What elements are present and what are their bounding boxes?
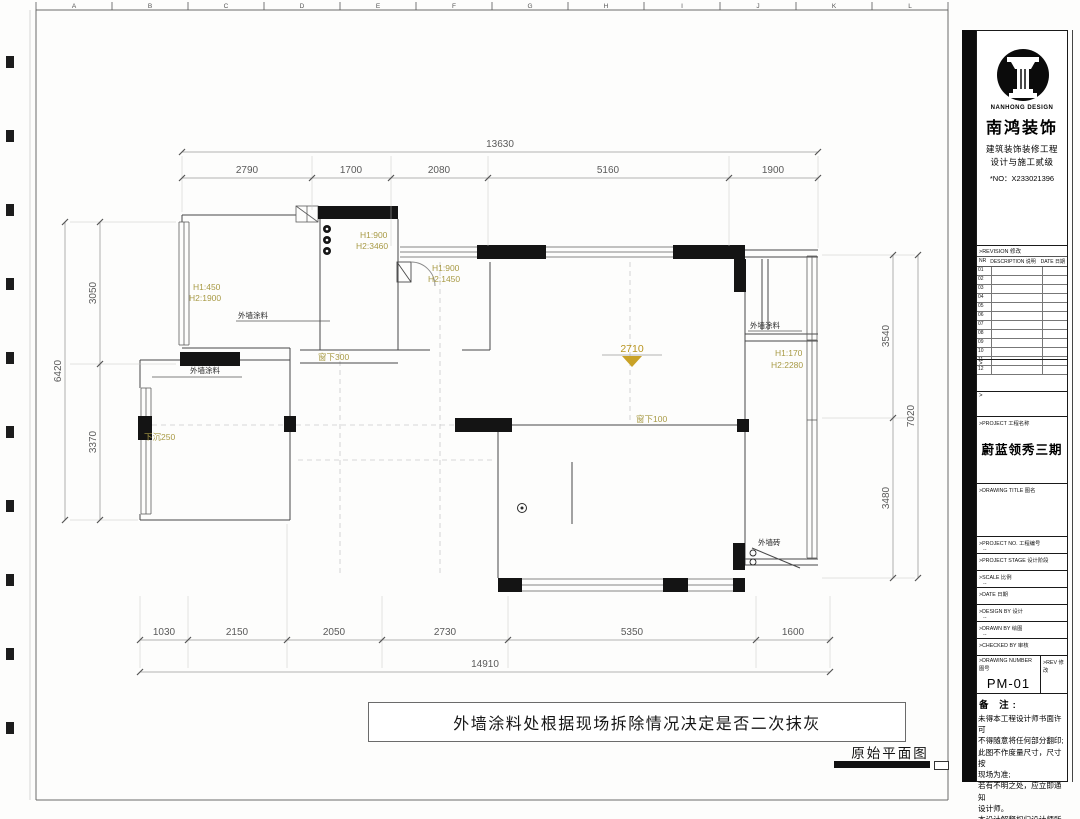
svg-text:1900: 1900 bbox=[762, 165, 785, 176]
svg-text:2730: 2730 bbox=[434, 627, 457, 638]
caption-tail-box bbox=[934, 761, 949, 770]
svg-text:5160: 5160 bbox=[597, 165, 620, 176]
title-block: NANHONG DESIGN 南鸿装饰 建筑装饰装修工程 设计与施工贰级 *NO… bbox=[958, 28, 1072, 788]
drawing-title-label: >DRAWING TITLE 图名 bbox=[977, 484, 1067, 494]
drawing-number-section: >DRAWING NUMBER 图号 PM-01 >REV 修改 bbox=[977, 655, 1067, 694]
brand-cn: 南鸿装饰 bbox=[977, 114, 1067, 138]
remarks-title: 备 注: bbox=[977, 694, 1067, 713]
svg-text:B: B bbox=[148, 3, 152, 10]
svg-text:E: E bbox=[376, 3, 381, 10]
svg-text:13630: 13630 bbox=[486, 139, 514, 150]
construction-lines bbox=[152, 262, 630, 576]
checked-by-field: >CHECKED BY 审核 bbox=[977, 638, 1067, 656]
elevation-marker: 2710 bbox=[602, 343, 662, 367]
drawing-title-section: >DRAWING TITLE 图名 bbox=[977, 483, 1067, 537]
project-section: >PROJECT 工程名称 蔚蓝领秀三期 bbox=[977, 416, 1067, 484]
title-block-edge bbox=[1072, 30, 1073, 782]
svg-text:2150: 2150 bbox=[226, 627, 249, 638]
svg-text:D: D bbox=[300, 3, 305, 10]
svg-text:外墙涂料: 外墙涂料 bbox=[238, 310, 268, 320]
drawing-number-value: PM-01 bbox=[977, 676, 1040, 691]
project-no-field: >PROJECT NO. 工程编号 -- bbox=[977, 536, 1067, 554]
project-name: 蔚蓝领秀三期 bbox=[977, 439, 1067, 458]
revision-table: >REVISION 修改 NR DESCRIPTION 说明 DATE 日期 0… bbox=[977, 245, 1067, 375]
spare-field-1: > bbox=[977, 359, 1067, 391]
svg-text:H: H bbox=[604, 3, 609, 10]
svg-text:H2:1900: H2:1900 bbox=[189, 293, 221, 303]
site-note-text: 外墙涂料处根据现场拆除情况决定是否二次抹灰 bbox=[453, 710, 821, 734]
revision-row: 07 bbox=[977, 321, 1067, 330]
revision-col-date: DATE 日期 bbox=[1039, 258, 1067, 265]
date-field: >DATE 日期 bbox=[977, 587, 1067, 605]
revision-row: 10 bbox=[977, 348, 1067, 357]
remarks-section: 备 注: 未得本工程设计师书面许可 不得随意将任何部分翻印; 此图不作度量尺寸，… bbox=[977, 693, 1067, 781]
svg-text:2050: 2050 bbox=[323, 627, 346, 638]
brand-cert-line1: 建筑装饰装修工程 bbox=[977, 143, 1067, 155]
revision-row: 09 bbox=[977, 339, 1067, 348]
wall-lines bbox=[140, 215, 818, 578]
revision-header: >REVISION 修改 bbox=[977, 246, 1067, 257]
svg-text:3540: 3540 bbox=[881, 324, 892, 347]
svg-text:3480: 3480 bbox=[881, 486, 892, 509]
rev-label: >REV 修改 bbox=[1041, 656, 1067, 674]
spare-field-2: > bbox=[977, 391, 1067, 416]
revision-row: 03 bbox=[977, 285, 1067, 294]
svg-text:1030: 1030 bbox=[153, 627, 176, 638]
revision-row: 01 bbox=[977, 267, 1067, 276]
svg-text:下沉250: 下沉250 bbox=[144, 432, 175, 442]
project-stage-field: >PROJECT STAGE 设计阶段 bbox=[977, 553, 1067, 571]
svg-text:2710: 2710 bbox=[620, 343, 644, 355]
svg-text:J: J bbox=[756, 3, 759, 10]
left-ruler-marks bbox=[6, 56, 14, 734]
dimension-text: 13630 2790 1700 2080 5160 1900 1030 2150… bbox=[53, 139, 917, 670]
floor-plan-canvas: A B C D E F G H I J K L bbox=[0, 0, 1080, 819]
window-annotations: H1:450 H2:1900 H1:900 H2:3460 H1:900 H2:… bbox=[144, 230, 803, 442]
svg-text:3050: 3050 bbox=[88, 281, 99, 304]
svg-text:1600: 1600 bbox=[782, 627, 805, 638]
svg-text:2080: 2080 bbox=[428, 165, 451, 176]
extension-lines bbox=[70, 156, 915, 668]
revision-row: 08 bbox=[977, 330, 1067, 339]
svg-text:外墙涂料: 外墙涂料 bbox=[190, 365, 220, 375]
svg-text:H2:2280: H2:2280 bbox=[771, 360, 803, 370]
svg-text:窗下100: 窗下100 bbox=[636, 414, 667, 424]
top-ruler bbox=[36, 2, 948, 10]
svg-text:1700: 1700 bbox=[340, 165, 363, 176]
svg-text:F: F bbox=[452, 3, 456, 10]
svg-text:A: A bbox=[72, 3, 77, 10]
dimension-lines bbox=[65, 152, 918, 672]
brand-license-no: *NO：X233021396 bbox=[977, 173, 1067, 184]
svg-text:6420: 6420 bbox=[53, 359, 64, 382]
window-lines bbox=[141, 206, 817, 591]
brand-cert-line2: 设计与施工贰级 bbox=[977, 156, 1067, 168]
svg-text:7020: 7020 bbox=[906, 404, 917, 427]
svg-text:外墙砖: 外墙砖 bbox=[758, 537, 781, 547]
site-note: 外墙涂料处根据现场拆除情况决定是否二次抹灰 bbox=[368, 702, 906, 742]
svg-text:G: G bbox=[527, 3, 532, 10]
svg-text:H1:900: H1:900 bbox=[432, 263, 460, 273]
sheet-frame bbox=[30, 10, 948, 800]
svg-text:H1:450: H1:450 bbox=[193, 282, 221, 292]
drawing-caption: 原始平面图 bbox=[830, 742, 950, 762]
svg-text:外墙涂料: 外墙涂料 bbox=[750, 320, 780, 330]
svg-text:窗下300: 窗下300 bbox=[318, 352, 349, 362]
svg-text:L: L bbox=[908, 3, 912, 10]
dimension-ticks bbox=[62, 149, 921, 675]
title-block-black-bar bbox=[962, 30, 976, 782]
drawing-sheet: A B C D E F G H I J K L bbox=[0, 0, 1080, 819]
revision-col-no: NR bbox=[977, 258, 988, 265]
svg-text:H1:900: H1:900 bbox=[360, 230, 388, 240]
svg-text:3370: 3370 bbox=[88, 430, 99, 453]
revision-row: 05 bbox=[977, 303, 1067, 312]
svg-text:C: C bbox=[224, 3, 229, 10]
revision-col-desc: DESCRIPTION 说明 bbox=[988, 258, 1038, 265]
scale-field: >SCALE 比例 -- bbox=[977, 570, 1067, 588]
caption-underline bbox=[834, 761, 930, 768]
title-block-panel: NANHONG DESIGN 南鸿装饰 建筑装饰装修工程 设计与施工贰级 *NO… bbox=[976, 30, 1068, 782]
drawn-by-field: >DRAWN BY 绘图 -- bbox=[977, 621, 1067, 639]
revision-column-headers: NR DESCRIPTION 说明 DATE 日期 bbox=[977, 257, 1067, 267]
svg-text:I: I bbox=[681, 3, 683, 10]
design-by-field: >DESIGN BY 设计 -- bbox=[977, 604, 1067, 622]
revision-row: 04 bbox=[977, 294, 1067, 303]
project-label: >PROJECT 工程名称 bbox=[977, 417, 1067, 427]
revision-row: 06 bbox=[977, 312, 1067, 321]
svg-text:2790: 2790 bbox=[236, 165, 259, 176]
svg-text:14910: 14910 bbox=[471, 659, 499, 670]
plan-symbols bbox=[323, 225, 756, 565]
drawing-number-label: >DRAWING NUMBER 图号 bbox=[977, 656, 1040, 672]
nanhong-logo-icon bbox=[995, 47, 1051, 103]
svg-text:H2:3460: H2:3460 bbox=[356, 241, 388, 251]
svg-text:K: K bbox=[832, 3, 837, 10]
brand-latin: NANHONG DESIGN bbox=[977, 105, 1067, 111]
svg-text:H2:1450: H2:1450 bbox=[428, 274, 460, 284]
svg-text:5350: 5350 bbox=[621, 627, 644, 638]
revision-row: 02 bbox=[977, 276, 1067, 285]
svg-text:H1:170: H1:170 bbox=[775, 348, 803, 358]
